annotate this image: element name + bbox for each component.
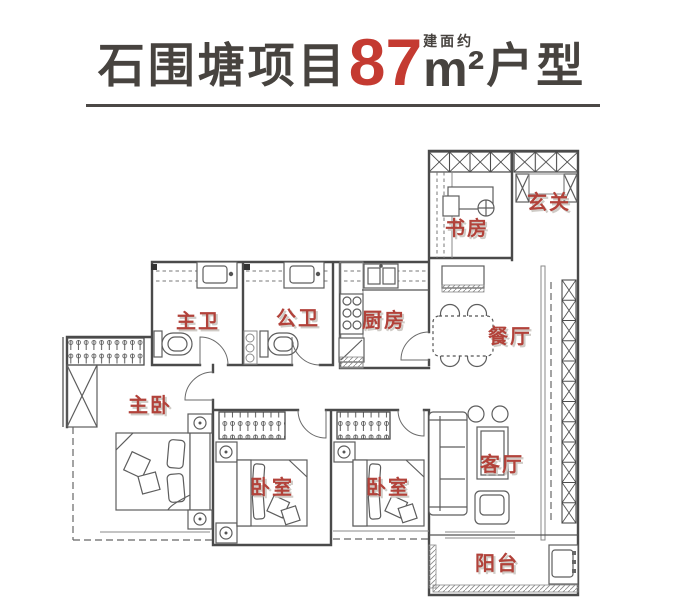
door-stop-dot — [244, 264, 250, 270]
wardrobe-icon — [67, 338, 144, 365]
nightstand-icon — [216, 442, 237, 462]
room-label-living: 客厅 — [479, 452, 524, 476]
walls — [63, 151, 578, 595]
window-line — [333, 531, 429, 539]
room-master-bath: 主卫 — [154, 262, 240, 365]
bed-icon — [116, 433, 210, 510]
door-stop-dot — [151, 264, 157, 270]
sink-icon — [284, 262, 324, 288]
room-label-study: 书房 — [445, 216, 489, 240]
kitchen-sink-icon — [362, 264, 429, 290]
room-label-dining: 餐厅 — [488, 324, 532, 348]
dining-set-icon — [433, 305, 493, 367]
room-label-public-bath: 公卫 — [276, 307, 320, 330]
room-label-balcony: 阳台 — [475, 551, 519, 575]
nightstand-icon — [216, 523, 237, 543]
room-label-master-bedroom: 主卧 — [128, 393, 172, 417]
stove-icon — [340, 294, 363, 334]
room-kitchen: 厨房 — [339, 262, 429, 368]
balcony-rail — [433, 585, 578, 592]
room-master-bedroom: 主卧 — [67, 338, 213, 540]
nightstand-icon — [334, 442, 355, 462]
nightstand-icon — [188, 414, 212, 433]
washing-machine-icon — [549, 545, 578, 584]
room-label-entry: 玄关 — [527, 190, 571, 214]
entry-cabinet-strip — [514, 152, 578, 172]
floor-plan: 书房 玄关 — [0, 0, 684, 615]
wardrobe-icon — [219, 412, 285, 439]
kitchen-base-unit — [339, 338, 364, 367]
right-window-wall — [541, 266, 576, 540]
desk-chair-icon — [478, 200, 494, 216]
room-balcony: 阳台 — [429, 532, 578, 592]
sofa-icon — [429, 412, 467, 515]
stool-icon — [468, 406, 484, 422]
balcony-rail — [429, 545, 436, 588]
sideboard-icon — [442, 266, 484, 292]
sink-icon — [197, 262, 237, 288]
room-label-kitchen: 厨房 — [362, 308, 406, 332]
room-bedroom-b: 卧室 — [333, 410, 429, 539]
toilet-icon — [154, 331, 192, 357]
room-label-bedroom-b: 卧室 — [366, 475, 410, 499]
room-bedroom-a: 卧室 — [216, 410, 326, 543]
armchair-icon — [475, 491, 509, 524]
room-living: 客厅 — [429, 406, 524, 524]
entry-shoe-cabinet — [529, 174, 564, 194]
room-entry: 玄关 — [514, 152, 578, 214]
room-label-master-bath: 主卫 — [176, 309, 220, 333]
shower-rail-icon — [244, 331, 257, 364]
desk-chair-seat — [443, 196, 459, 216]
room-dining: 餐厅 — [433, 266, 532, 367]
wardrobe-icon — [337, 412, 390, 439]
room-public-bath: 公卫 — [244, 262, 330, 365]
room-study: 书房 — [429, 152, 512, 258]
nightstand-icon — [188, 510, 212, 529]
floorplan-poster: 石围塘项目 87 建面约 m² 户型 — [0, 0, 684, 615]
study-closet-strip — [429, 152, 512, 172]
structural-column — [67, 365, 97, 427]
room-label-bedroom-a: 卧室 — [250, 475, 294, 499]
stool-icon — [492, 406, 508, 422]
